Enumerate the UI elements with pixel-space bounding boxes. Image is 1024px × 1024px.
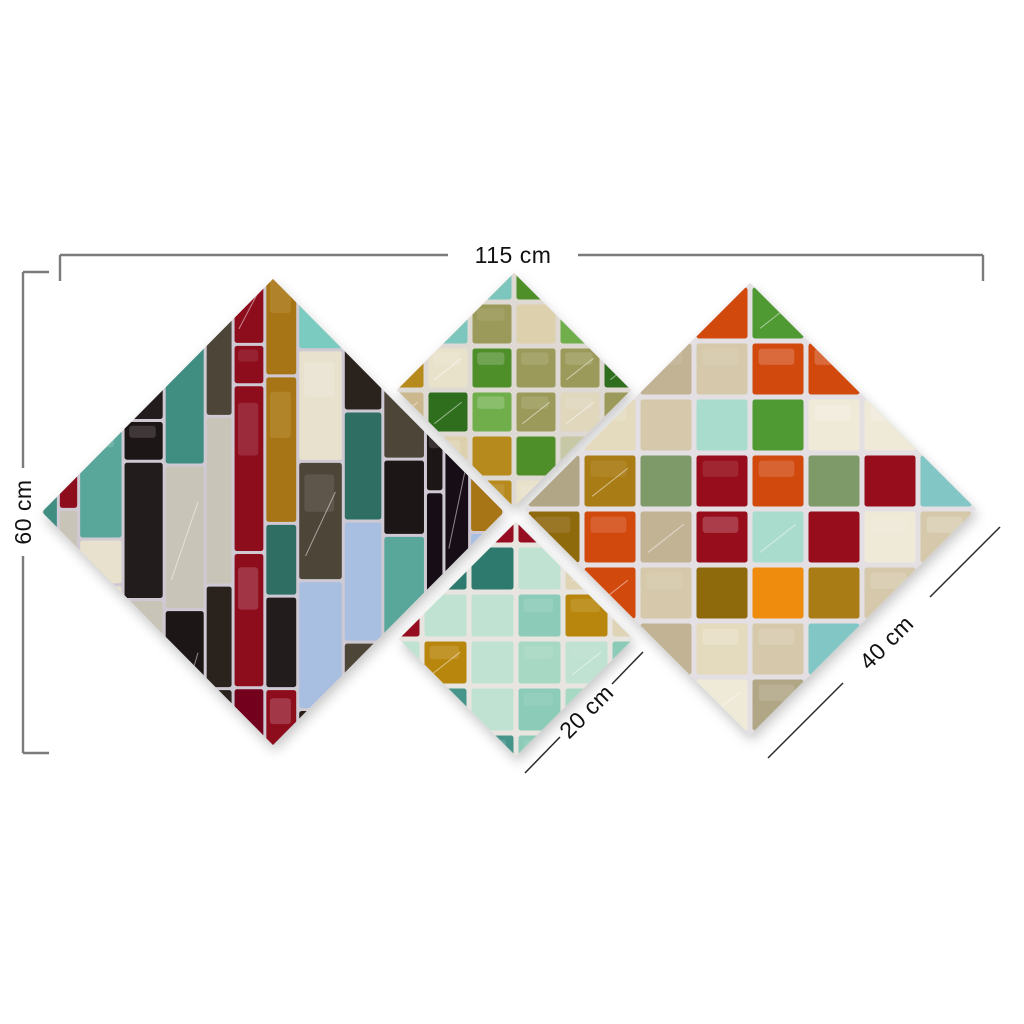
glass-highlight [647,293,683,309]
glass-highlight [524,693,553,706]
mosaic-tile [753,288,804,339]
crackle-line [46,726,55,816]
glass-highlight [703,517,739,533]
mosaic-tile [697,232,748,283]
glass-highlight [703,349,739,365]
mosaic-tile [44,546,57,617]
mosaic-tile [977,512,1024,563]
mosaic-tile [641,288,692,339]
glass-highlight [871,405,907,421]
mosaic-tile [921,456,972,507]
mosaic-tile [80,586,121,730]
mosaic-tile [60,274,77,349]
glass-highlight [477,396,504,408]
mosaic-tile [345,719,382,850]
mosaic-tile [425,689,467,731]
mosaic-tile [753,400,804,451]
glass-highlight [304,362,334,397]
mosaic-tile [345,523,382,641]
mosaic-tile [266,598,296,688]
glass-highlight [238,567,258,609]
mosaic-tile [472,548,514,590]
glass-highlight [477,740,506,753]
glass-highlight [62,726,74,742]
glass-highlight [45,625,54,645]
glass-highlight [571,646,600,659]
glass-highlight [759,685,795,701]
mosaic-tile [445,438,468,576]
mosaic-tile [865,456,916,507]
mosaic-tile [519,548,561,590]
crackle-line [171,653,198,744]
mosaic-tile [809,456,860,507]
mosaic-tile [429,305,468,344]
mosaic-tile [472,689,514,731]
mosaic-tile [641,624,692,675]
mosaic-tile [753,512,804,563]
mosaic-tile [235,273,264,343]
mosaic-tile [80,382,121,538]
mosaic-tile [345,413,382,520]
product-dimension-image: 115 cm 60 cm 20 cm 40 cm [0,0,1024,1024]
mosaic-tile [697,288,748,339]
canvas-panel-set [42,232,1024,888]
mosaic-tile [517,305,556,344]
mosaic-tile [641,680,692,731]
crackle-line [449,723,465,785]
glass-highlight [759,349,795,365]
glass-highlight [609,352,636,364]
crackle-line [62,293,74,334]
mosaic-tile [207,272,232,415]
glass-highlight [129,426,156,438]
crackle-line [86,622,115,701]
glass-highlight [759,461,795,477]
mosaic-tile [561,305,600,344]
mosaic-tile [345,247,382,409]
glass-highlight [535,517,571,533]
glass-highlight [524,599,553,612]
mosaic-tile [378,642,420,684]
mosaic-tile [44,685,57,849]
mosaic-tile [697,400,748,451]
mosaic-tile [80,252,121,378]
mosaic-tile [427,734,442,887]
mosaic-tile [60,722,77,770]
mosaic-tile [641,400,692,451]
mosaic-tile [299,711,342,782]
crackle-line [62,687,74,710]
glass-highlight [647,349,683,365]
glass-highlight [571,599,600,612]
glass-highlight [983,517,1019,533]
glass-highlight [521,352,548,364]
glass-highlight [591,461,627,477]
glass-highlight [703,237,739,253]
mosaic-tile [345,644,382,716]
glass-highlight [238,403,258,456]
glass-highlight [389,695,417,742]
mosaic-tile [445,695,468,807]
mosaic-tile [697,736,748,787]
glass-highlight [647,573,683,589]
dimension-width-label: 115 cm [475,242,552,268]
crackle-line [648,300,684,328]
glass-highlight [815,405,851,421]
mosaic-tile [753,232,804,283]
glass-highlight [389,352,416,364]
mosaic-tile [865,344,916,395]
mosaic-tile [753,568,804,619]
glass-highlight [703,629,739,645]
glass-highlight [270,279,291,313]
mosaic-tile [44,278,57,442]
glass-highlight [238,350,258,362]
mosaic-tile [266,525,296,595]
glass-highlight [759,629,795,645]
mosaic-tile [207,690,232,838]
mosaic-tile [697,568,748,619]
glass-highlight [430,646,459,659]
glass-highlight [815,349,851,365]
product-scene: 115 cm 60 cm 20 cm 40 cm [0,0,1024,1024]
mosaic-tile [921,400,972,451]
glass-highlight [448,706,464,742]
mosaic-tile [80,734,121,840]
mosaic-tile [641,456,692,507]
mosaic-tile [385,349,424,388]
mosaic-tile [166,466,204,608]
mosaic-tile [125,463,163,598]
mosaic-tile [299,247,342,348]
mosaic-tile [207,418,232,584]
mosaic-tile [809,624,860,675]
mosaic-tile [384,461,424,534]
mosaic-tile [472,736,514,778]
mosaic-tile [641,344,692,395]
mosaic-tile [445,277,468,328]
mosaic-tile [921,568,972,619]
mosaic-tile [809,680,860,731]
mosaic-tile [697,680,748,731]
mosaic-tile [809,512,860,563]
mosaic-tile [809,288,860,339]
crackle-line [350,662,376,702]
glass-highlight [304,475,334,512]
mosaic-tile [166,255,204,294]
glass-highlight [389,248,417,266]
mosaic-tile [166,611,204,777]
glass-highlight [85,397,114,447]
mosaic-tile [753,736,804,787]
mosaic-tile [809,568,860,619]
mosaic-tile [166,297,204,463]
glass-highlight [871,517,907,533]
glass-highlight [62,681,74,695]
crackle-line [86,284,115,354]
glass-highlight [871,349,907,365]
glass-highlight [871,573,907,589]
mosaic-tile [60,352,77,508]
mosaic-tile [427,493,442,601]
glass-highlight [524,646,553,659]
mosaic-tile [472,595,514,637]
mosaic-tile [125,697,163,775]
mosaic-tile [207,587,232,688]
mosaic-tile [384,242,424,299]
mosaic-tile [235,689,264,830]
mosaic-tile [44,445,57,543]
glass-highlight [927,517,963,533]
crackle-line [610,358,637,379]
glass-highlight [524,740,553,753]
mosaic-tile [473,437,512,476]
mosaic-tile [429,393,468,432]
glass-highlight [477,352,504,364]
mosaic-tile [425,595,467,637]
mosaic-tile [605,349,644,388]
dimension-height-label: 60 cm [10,479,36,544]
mosaic-tile [299,582,342,708]
mosaic-tile [60,511,77,674]
mosaic-tile [977,456,1024,507]
mosaic-tile [384,680,424,827]
glass-highlight [85,265,114,305]
mosaic-tile [80,541,121,584]
glass-highlight [591,517,627,533]
mosaic-tile [60,676,77,718]
mosaic-tile [517,437,556,476]
glass-highlight [477,308,504,320]
glass-highlight [759,237,795,253]
mosaic-tile [641,512,692,563]
crackle-line [390,717,418,798]
mosaic-tile [44,619,57,682]
mosaic-tile [472,642,514,684]
glass-highlight [270,392,291,438]
glass-highlight [703,461,739,477]
mosaic-tile [125,601,163,694]
mosaic-tile [125,257,163,419]
glass-highlight [270,698,291,724]
glass-highlight [129,705,156,730]
